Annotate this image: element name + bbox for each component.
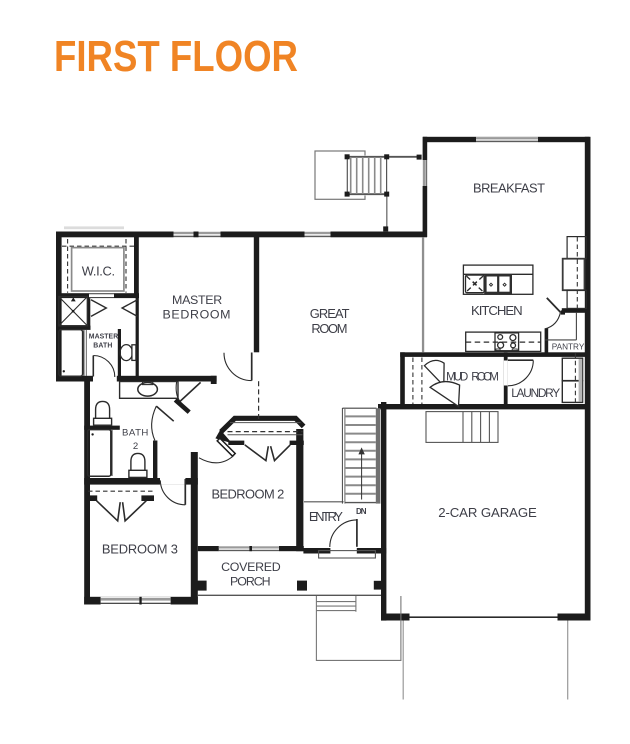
svg-text:COVERED: COVERED [221, 560, 281, 574]
svg-text:KITCHEN: KITCHEN [471, 303, 523, 318]
svg-text:PANTRY: PANTRY [552, 343, 585, 352]
svg-text:MUD: MUD [446, 371, 468, 384]
svg-text:GREAT: GREAT [310, 306, 350, 321]
svg-text:2-CAR GARAGE: 2-CAR GARAGE [438, 505, 537, 520]
svg-text:FIRST FLOOR: FIRST FLOOR [54, 33, 298, 81]
svg-text:BEDROOM 2: BEDROOM 2 [211, 487, 284, 502]
svg-text:BATH: BATH [122, 428, 148, 439]
svg-text:DN: DN [356, 507, 367, 516]
svg-text:ROOM: ROOM [471, 371, 499, 384]
svg-text:BATH: BATH [93, 342, 112, 349]
svg-text:BEDROOM 3: BEDROOM 3 [102, 542, 178, 557]
svg-text:LAUNDRY: LAUNDRY [511, 386, 560, 400]
svg-text:ROOM: ROOM [311, 321, 347, 336]
svg-text:BEDROOM: BEDROOM [163, 308, 231, 322]
svg-text:PORCH: PORCH [230, 574, 271, 588]
svg-text:MASTER: MASTER [172, 293, 222, 307]
svg-text:2: 2 [133, 441, 138, 452]
svg-text:W.I.C.: W.I.C. [82, 264, 115, 279]
svg-text:MASTER: MASTER [89, 334, 118, 341]
svg-text:ENTRY: ENTRY [309, 509, 343, 524]
svg-text:BREAKFAST: BREAKFAST [473, 180, 545, 195]
